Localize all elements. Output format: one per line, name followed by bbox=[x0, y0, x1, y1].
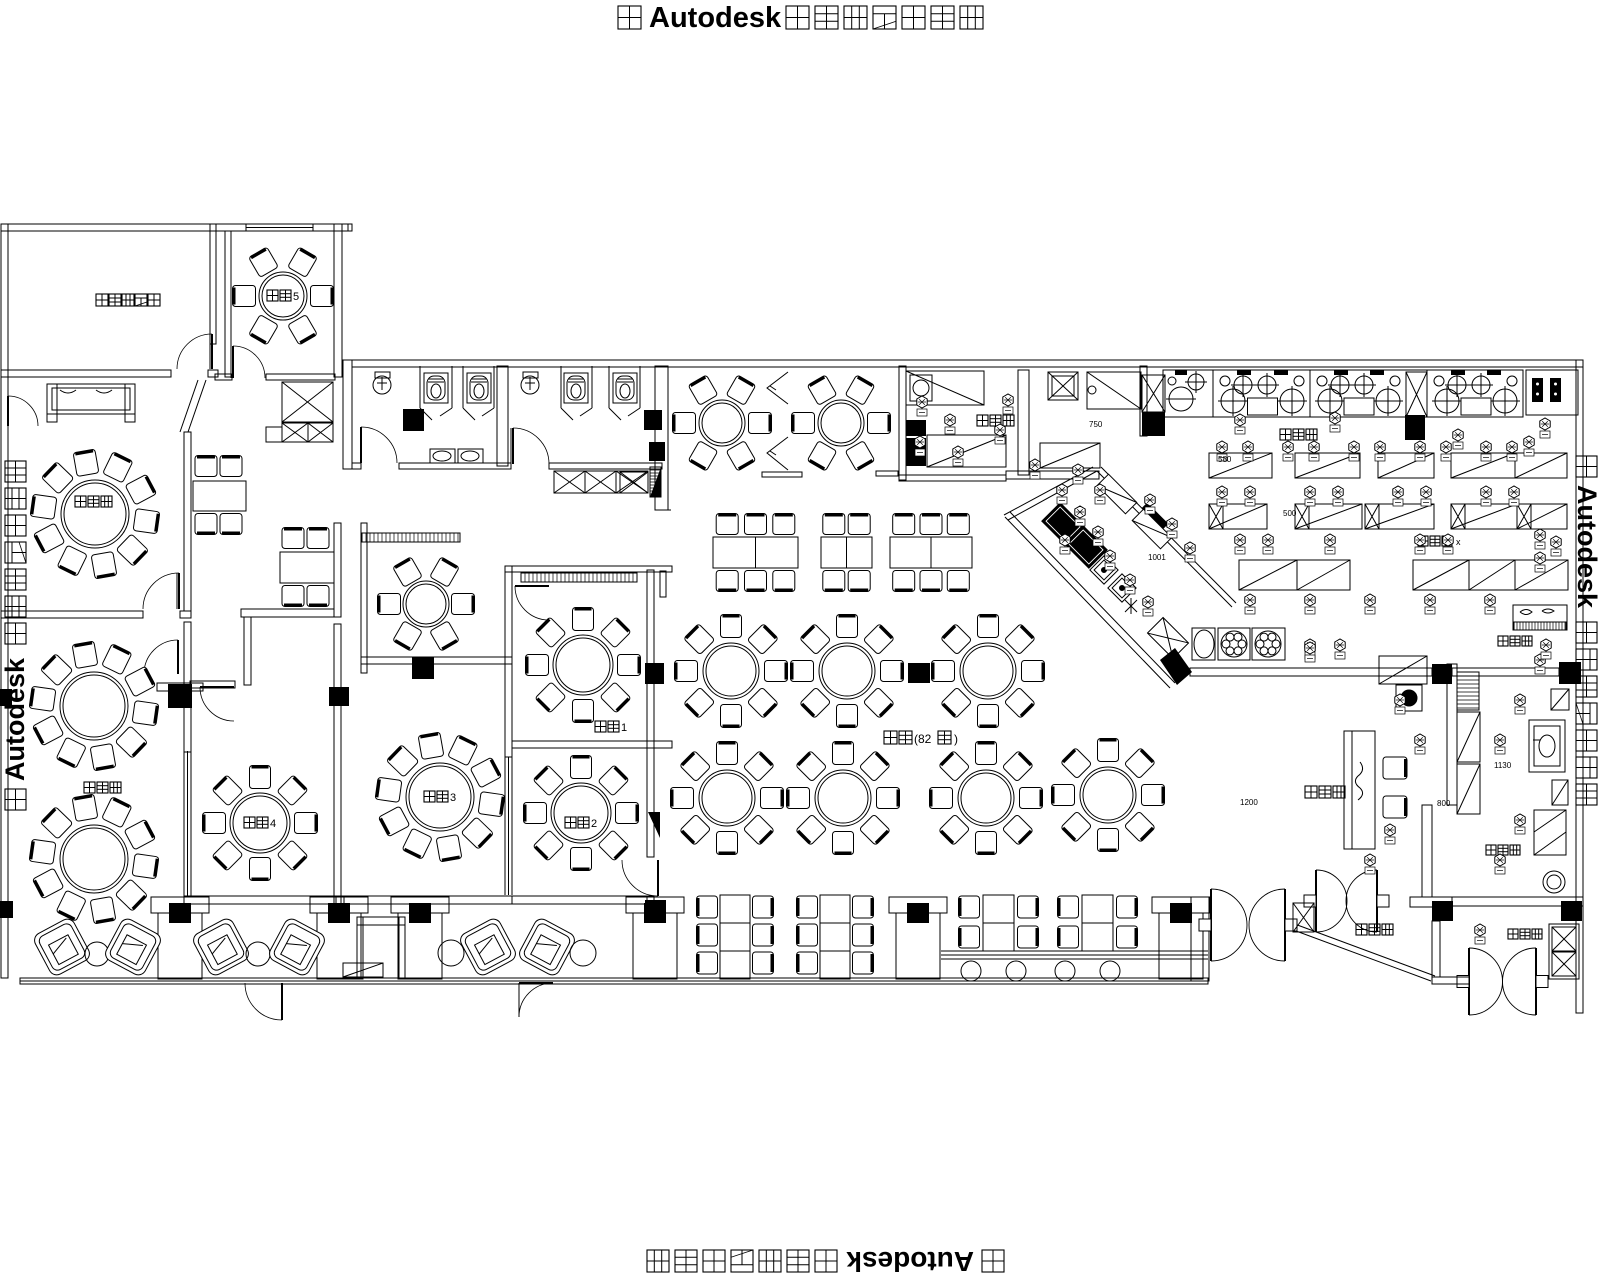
svg-text:800: 800 bbox=[1437, 799, 1451, 808]
svg-text:3: 3 bbox=[450, 792, 456, 804]
svg-text:500: 500 bbox=[1283, 509, 1297, 518]
svg-text:2: 2 bbox=[591, 818, 597, 830]
svg-text:Autodesk: Autodesk bbox=[0, 657, 30, 781]
svg-text:(82: (82 bbox=[914, 732, 932, 746]
svg-text:Autodesk: Autodesk bbox=[649, 2, 782, 34]
svg-text:Autodesk: Autodesk bbox=[846, 1246, 974, 1277]
svg-text:5: 5 bbox=[293, 291, 299, 303]
svg-text:1: 1 bbox=[621, 722, 627, 734]
svg-text:750: 750 bbox=[1089, 420, 1103, 429]
svg-text:1200: 1200 bbox=[1240, 798, 1258, 807]
svg-text:1130: 1130 bbox=[1494, 761, 1512, 770]
svg-text:x: x bbox=[1456, 537, 1461, 547]
svg-text:580: 580 bbox=[1218, 455, 1232, 464]
svg-text:1001: 1001 bbox=[1148, 553, 1166, 562]
svg-text:4: 4 bbox=[270, 818, 276, 830]
svg-text:): ) bbox=[954, 732, 958, 746]
